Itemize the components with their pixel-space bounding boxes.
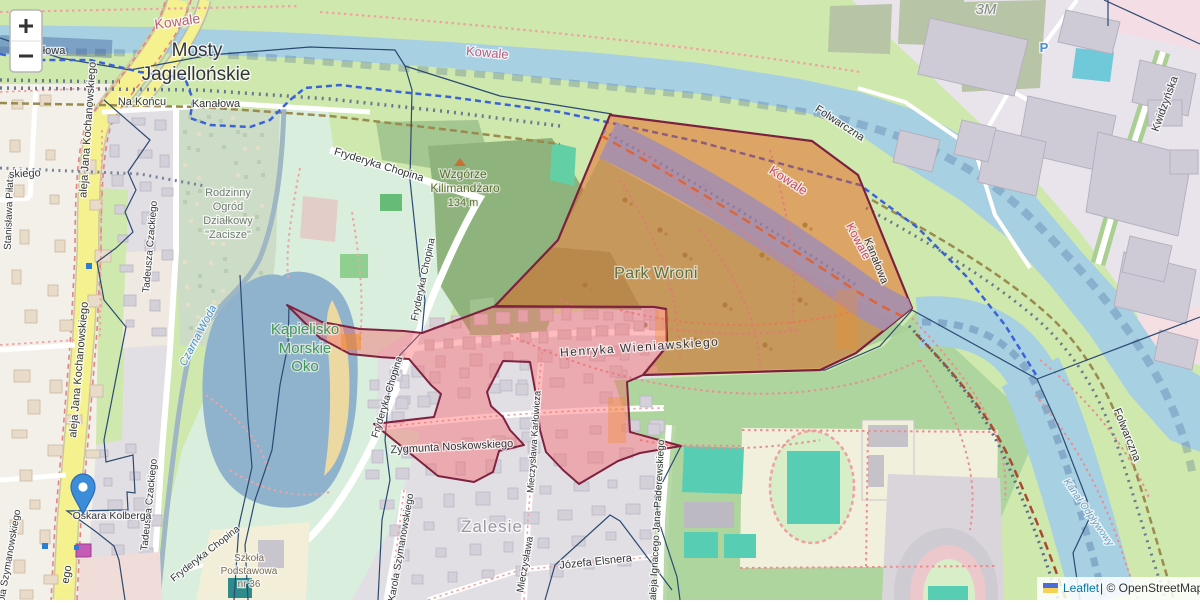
svg-text:Morskie: Morskie bbox=[279, 340, 332, 357]
svg-text:3M: 3M bbox=[976, 1, 997, 18]
svg-text:P: P bbox=[1040, 40, 1049, 55]
svg-text:Podstawowa: Podstawowa bbox=[221, 566, 278, 577]
svg-text:Oko: Oko bbox=[291, 358, 319, 375]
svg-text:Na Końcu: Na Końcu bbox=[118, 96, 166, 108]
svg-text:Ogród: Ogród bbox=[213, 201, 244, 213]
svg-text:Leaflet: Leaflet bbox=[1063, 581, 1100, 595]
svg-text:Szkoła: Szkoła bbox=[234, 553, 264, 564]
svg-text:nr 36: nr 36 bbox=[238, 579, 261, 590]
svg-text:Kanałowa: Kanałowa bbox=[192, 98, 241, 110]
svg-text:Kąpielisko: Kąpielisko bbox=[271, 321, 339, 338]
svg-text:Jagiellońskie: Jagiellońskie bbox=[142, 64, 251, 85]
svg-text:skiego: skiego bbox=[9, 167, 41, 181]
svg-text:Wzgórze: Wzgórze bbox=[439, 167, 487, 181]
svg-text:Działkowy: Działkowy bbox=[203, 215, 253, 227]
svg-text:Park Wroni: Park Wroni bbox=[614, 265, 698, 282]
svg-text:134 m: 134 m bbox=[448, 197, 479, 209]
svg-text:| © OpenStreetMap: | © OpenStreetMap bbox=[1100, 581, 1200, 595]
svg-text:Zalesie: Zalesie bbox=[461, 517, 523, 536]
svg-text:Mosty: Mosty bbox=[172, 40, 223, 61]
svg-text:"Zacisze": "Zacisze" bbox=[205, 229, 251, 241]
svg-text:Kilimandżaro: Kilimandżaro bbox=[430, 181, 500, 195]
svg-text:Rodzinny: Rodzinny bbox=[205, 187, 251, 199]
